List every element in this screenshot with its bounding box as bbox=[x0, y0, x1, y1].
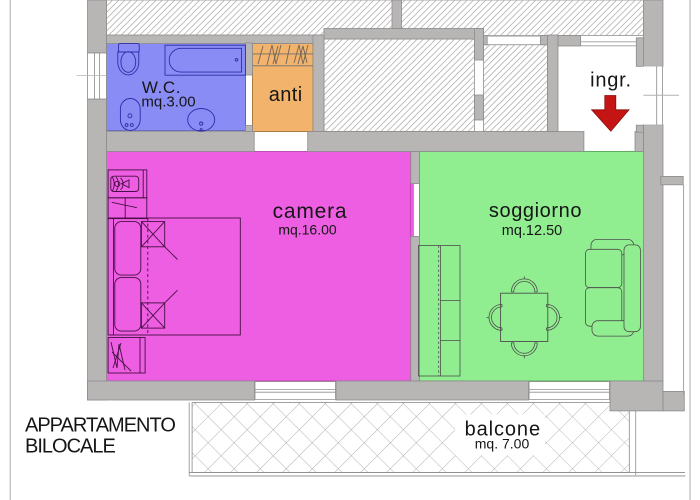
svg-text:mq.3.00: mq.3.00 bbox=[141, 93, 195, 110]
svg-text:mq.16.00: mq.16.00 bbox=[278, 222, 337, 238]
svg-text:ingr.: ingr. bbox=[590, 70, 632, 92]
svg-text:mq.12.50: mq.12.50 bbox=[502, 223, 562, 239]
svg-text:soggiorno: soggiorno bbox=[489, 200, 582, 222]
svg-text:camera: camera bbox=[273, 200, 348, 223]
svg-text:BILOCALE: BILOCALE bbox=[25, 436, 115, 458]
svg-text:APPARTAMENTO: APPARTAMENTO bbox=[25, 414, 175, 436]
svg-text:anti: anti bbox=[269, 84, 303, 106]
svg-text:mq. 7.00: mq. 7.00 bbox=[475, 436, 530, 452]
